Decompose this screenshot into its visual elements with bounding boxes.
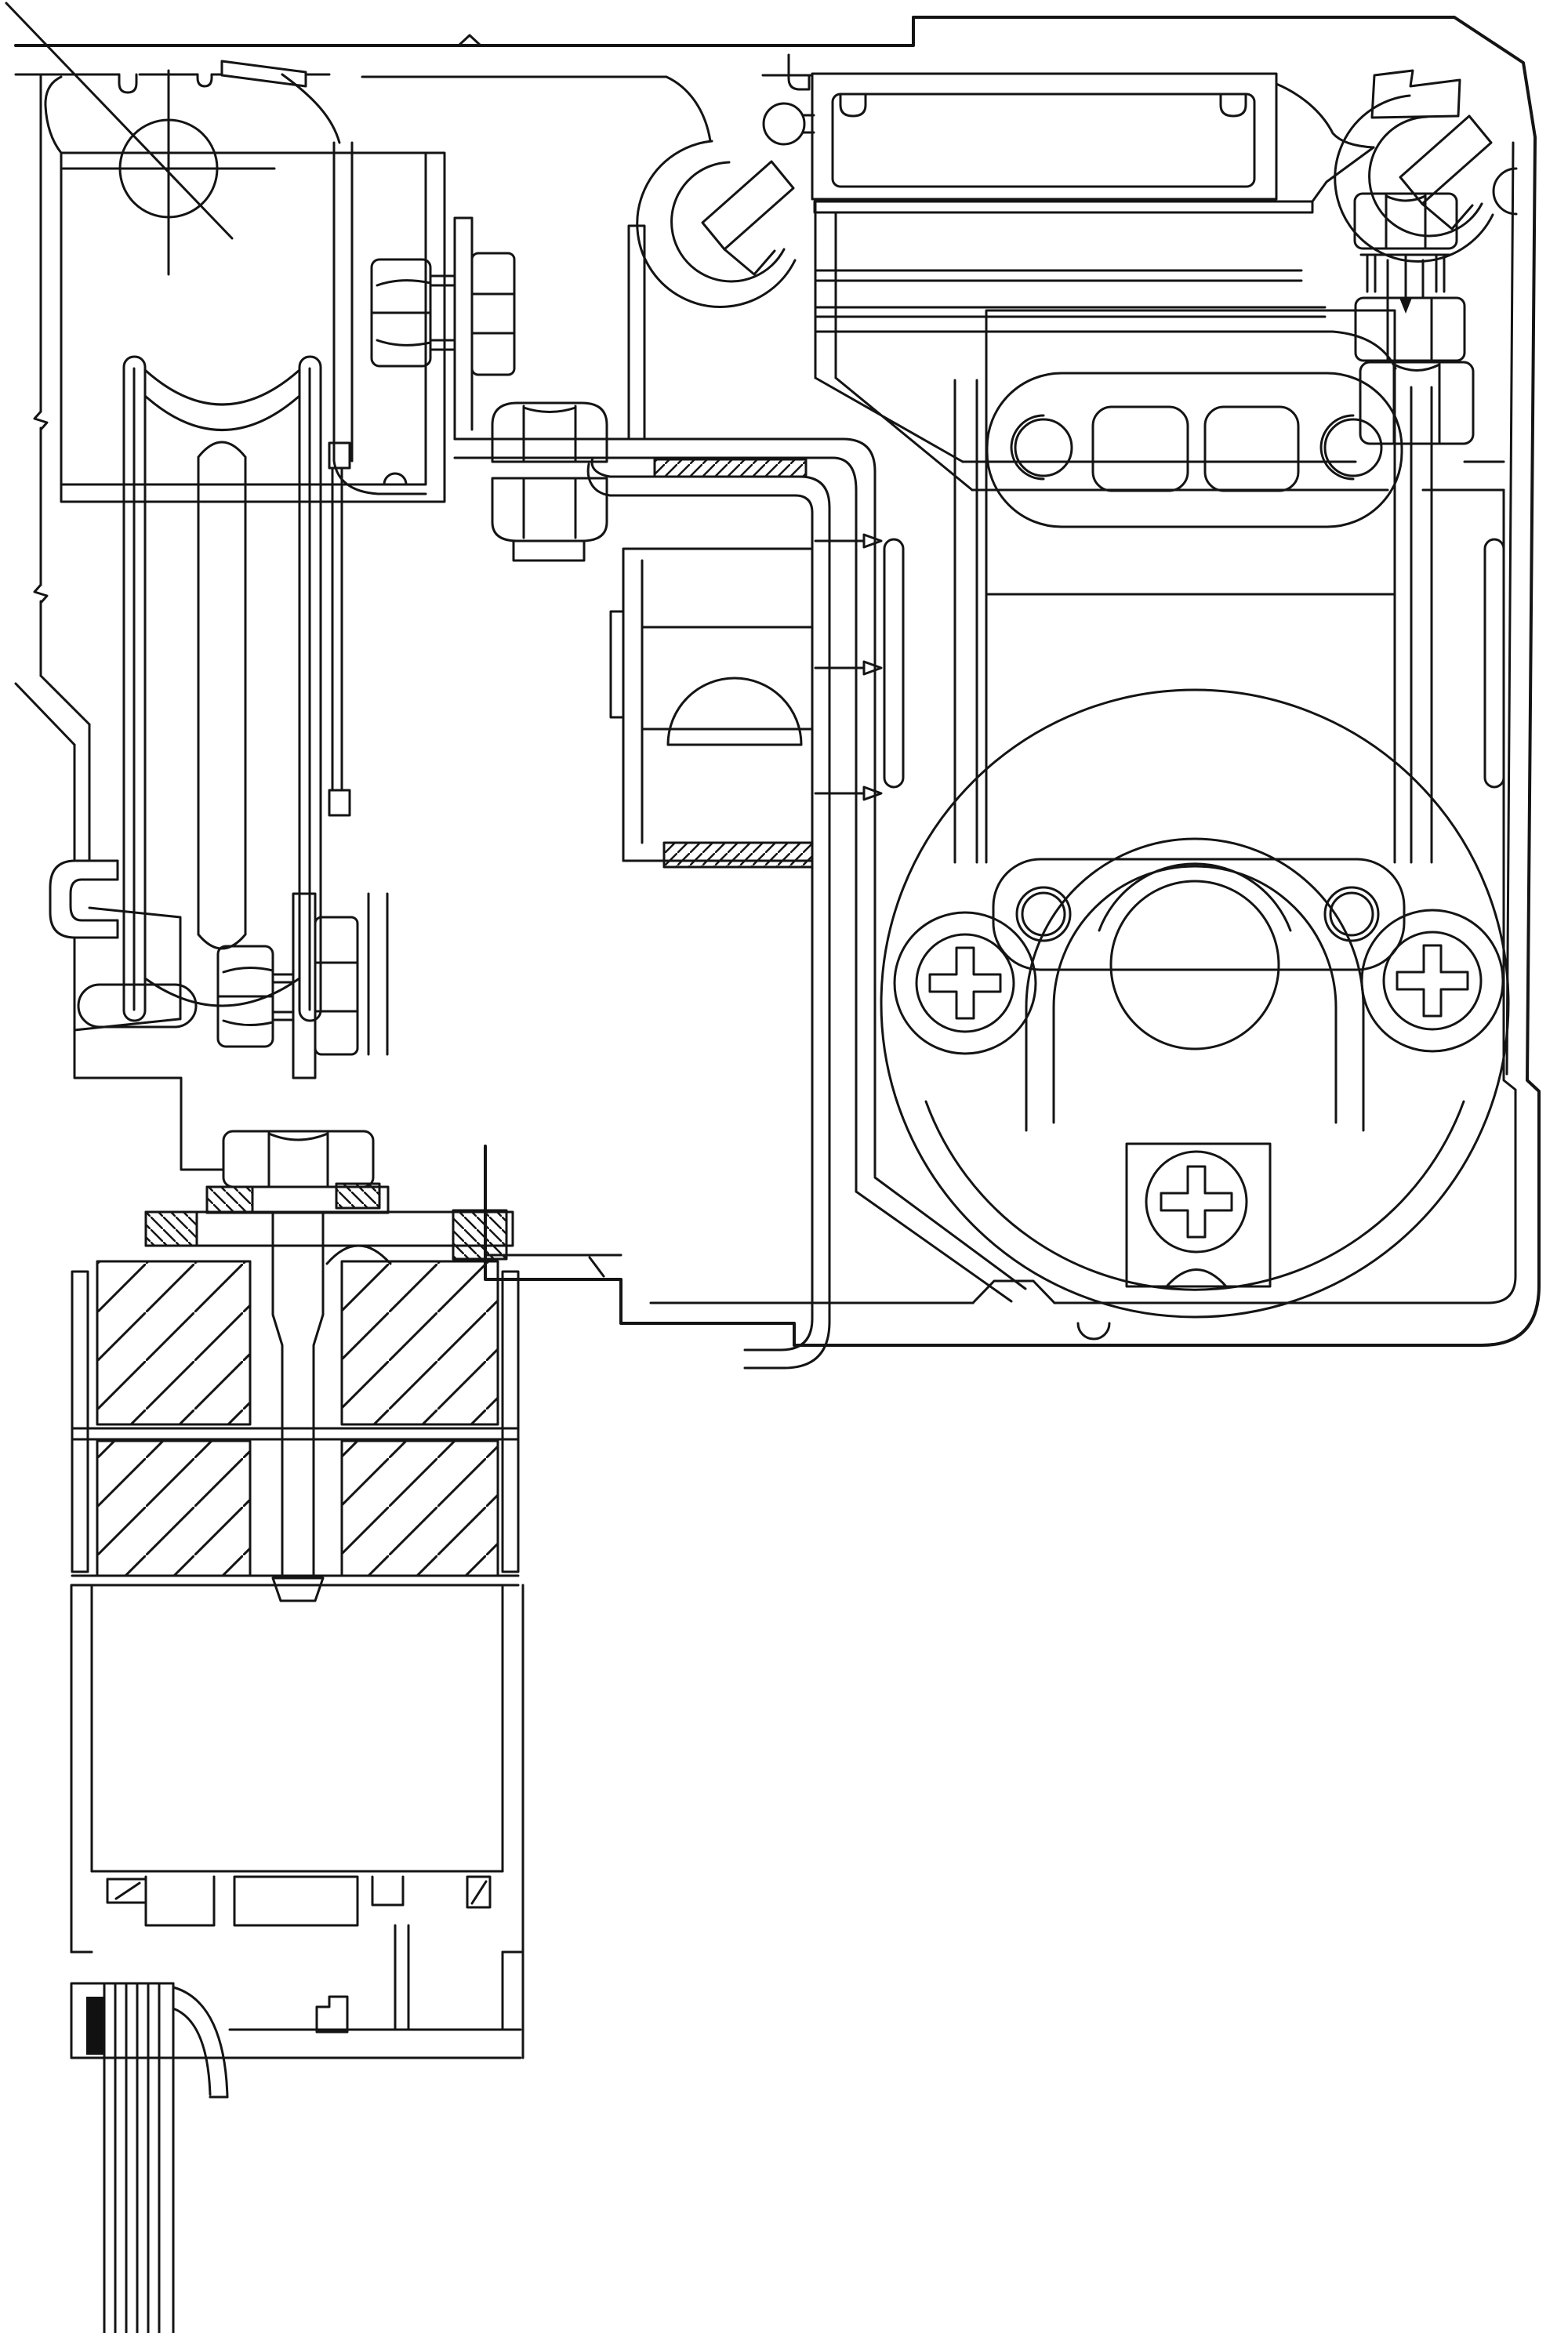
motor-circle [881, 690, 1508, 1317]
drawing-canvas [0, 0, 1568, 2333]
bottom-rail [71, 1585, 523, 2058]
fixing-bolt-top-right [1355, 194, 1473, 444]
phillips-screw-left [895, 913, 1036, 1054]
cad-drawing [0, 0, 1568, 2333]
adjustment-bolt-upper [372, 253, 514, 375]
phillips-screw-bottom [1127, 1144, 1270, 1286]
glazing-stack [72, 1261, 518, 1585]
l-bracket [455, 218, 875, 1368]
phillips-screw-right [1362, 910, 1503, 1051]
slotted-plate-upper [987, 373, 1402, 527]
head-frame-profile [16, 17, 1539, 1345]
section-cut-marker [6, 3, 274, 274]
screw-boss-left [637, 55, 814, 307]
drive-housing [485, 71, 1515, 1339]
top-left-chamber [45, 77, 445, 502]
clamp-plate [146, 1184, 513, 1264]
spacer-block [611, 459, 881, 867]
brush-seal [71, 1983, 227, 2333]
